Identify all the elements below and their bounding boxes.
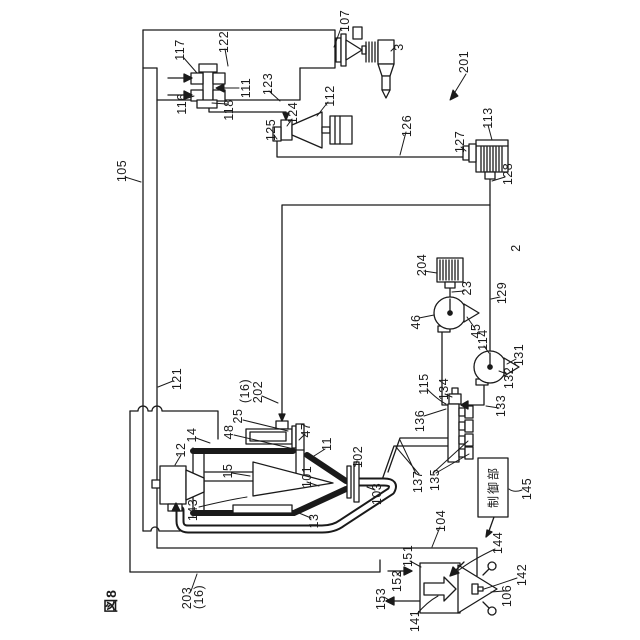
ref-label-47: 47 [299, 423, 313, 438]
ref-label-128: 128 [501, 163, 515, 185]
pipe-133 [468, 385, 484, 405]
igniter-107 [336, 27, 378, 66]
ref-label-121: 121 [170, 368, 184, 390]
ref-label-103: 103 [370, 483, 384, 505]
ref-label-16b: (16) [192, 585, 206, 609]
ref-label-152: 152 [390, 570, 404, 592]
ref-label-114: 114 [476, 329, 490, 350]
ref-label-135: 135 [428, 469, 442, 491]
ref-label-134: 134 [437, 378, 451, 400]
ref-label-104: 104 [434, 510, 448, 532]
pipe-203-bottom [130, 560, 380, 572]
ref-label-153: 153 [374, 588, 388, 610]
patent-figure-page: 107 3 201 117 122 111 123 116 118 112 12… [0, 0, 640, 640]
ref-label-48: 48 [222, 425, 236, 440]
patent-diagram [0, 0, 640, 640]
combustor-11 [193, 448, 359, 516]
ref-label-111: 111 [239, 78, 253, 99]
ref-label-133: 133 [494, 395, 508, 417]
heater-47 [246, 421, 304, 450]
ref-label-122: 122 [217, 31, 231, 53]
ref-label-106: 106 [500, 585, 514, 607]
ref-label-142: 142 [515, 564, 529, 586]
ref-label-127: 127 [453, 131, 467, 153]
ref-label-204: 204 [415, 254, 429, 276]
ref-label-141: 141 [408, 610, 422, 632]
ref-label-12: 12 [174, 443, 188, 458]
arrow-152 [404, 567, 412, 575]
ref-label-11: 11 [320, 437, 334, 451]
ref-label-123: 123 [261, 73, 275, 95]
ref-label-14: 14 [185, 428, 199, 443]
ref-label-129: 129 [495, 282, 509, 304]
pipe-123 [209, 107, 286, 114]
ref-label-16a: (16) [238, 379, 252, 403]
ref-label-117: 117 [173, 39, 187, 60]
ref-label-15: 15 [221, 464, 235, 479]
arrow-into-47 [279, 414, 285, 421]
ref-label-113: 113 [481, 107, 495, 128]
ref-label-145: 145 [520, 478, 534, 500]
ref-label-3: 3 [392, 43, 406, 50]
ref-label-115: 115 [417, 373, 431, 394]
ref-label-151: 151 [401, 545, 415, 567]
ref-label-13: 13 [307, 514, 321, 529]
ref-label-2: 2 [509, 244, 523, 251]
ref-label-105: 105 [115, 160, 129, 182]
ref-label-46: 46 [409, 315, 423, 330]
ref-label-107: 107 [338, 10, 352, 32]
ref-label-201: 201 [457, 51, 471, 73]
injector-rail-115 [448, 388, 473, 462]
control-unit-label: 制御部 [485, 466, 502, 508]
ref-label-136: 136 [413, 410, 427, 432]
pipe-126 [277, 141, 463, 157]
figure-number: 図8 [101, 589, 121, 613]
spark-plug-142 [472, 584, 478, 594]
ref-label-102: 102 [351, 446, 365, 468]
ref-label-143: 143 [186, 499, 200, 521]
ref-label-202: 202 [251, 381, 265, 403]
ref-label-132: 132 [502, 367, 516, 389]
ref-label-126: 126 [400, 115, 414, 137]
signal-line [489, 517, 494, 531]
ref-label-116: 116 [175, 93, 189, 114]
ref-label-144: 144 [491, 532, 505, 554]
ref-label-137: 137 [411, 471, 425, 493]
ref-label-124: 124 [286, 102, 300, 124]
ref-label-118: 118 [222, 99, 236, 120]
ref-label-23: 23 [460, 281, 474, 296]
pipe-105-connector [143, 527, 180, 531]
ref-label-112: 112 [323, 85, 337, 106]
ref-label-131: 131 [512, 344, 526, 366]
ref-label-25: 25 [231, 409, 245, 424]
ref-label-101: 101 [300, 466, 314, 488]
ref-label-125: 125 [264, 119, 278, 141]
